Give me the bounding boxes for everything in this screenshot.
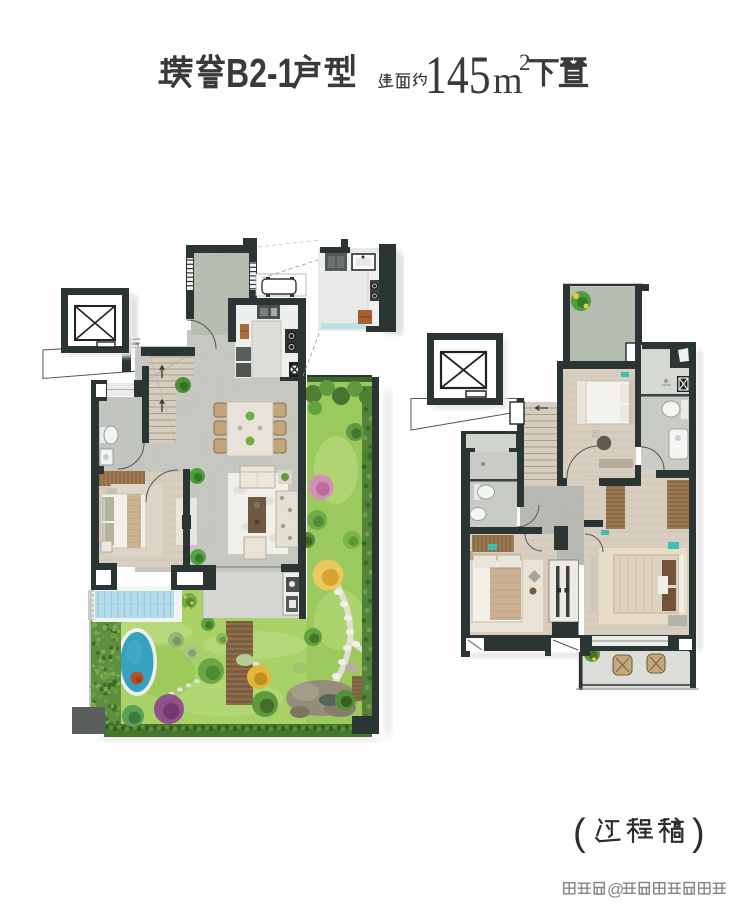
svg-text:2: 2 (519, 50, 531, 75)
svg-text:145: 145 (425, 45, 491, 105)
svg-text:(: ( (573, 812, 586, 854)
svg-text:): ) (692, 812, 705, 854)
svg-text:B2-1: B2-1 (226, 50, 295, 96)
svg-text:@: @ (607, 880, 624, 899)
